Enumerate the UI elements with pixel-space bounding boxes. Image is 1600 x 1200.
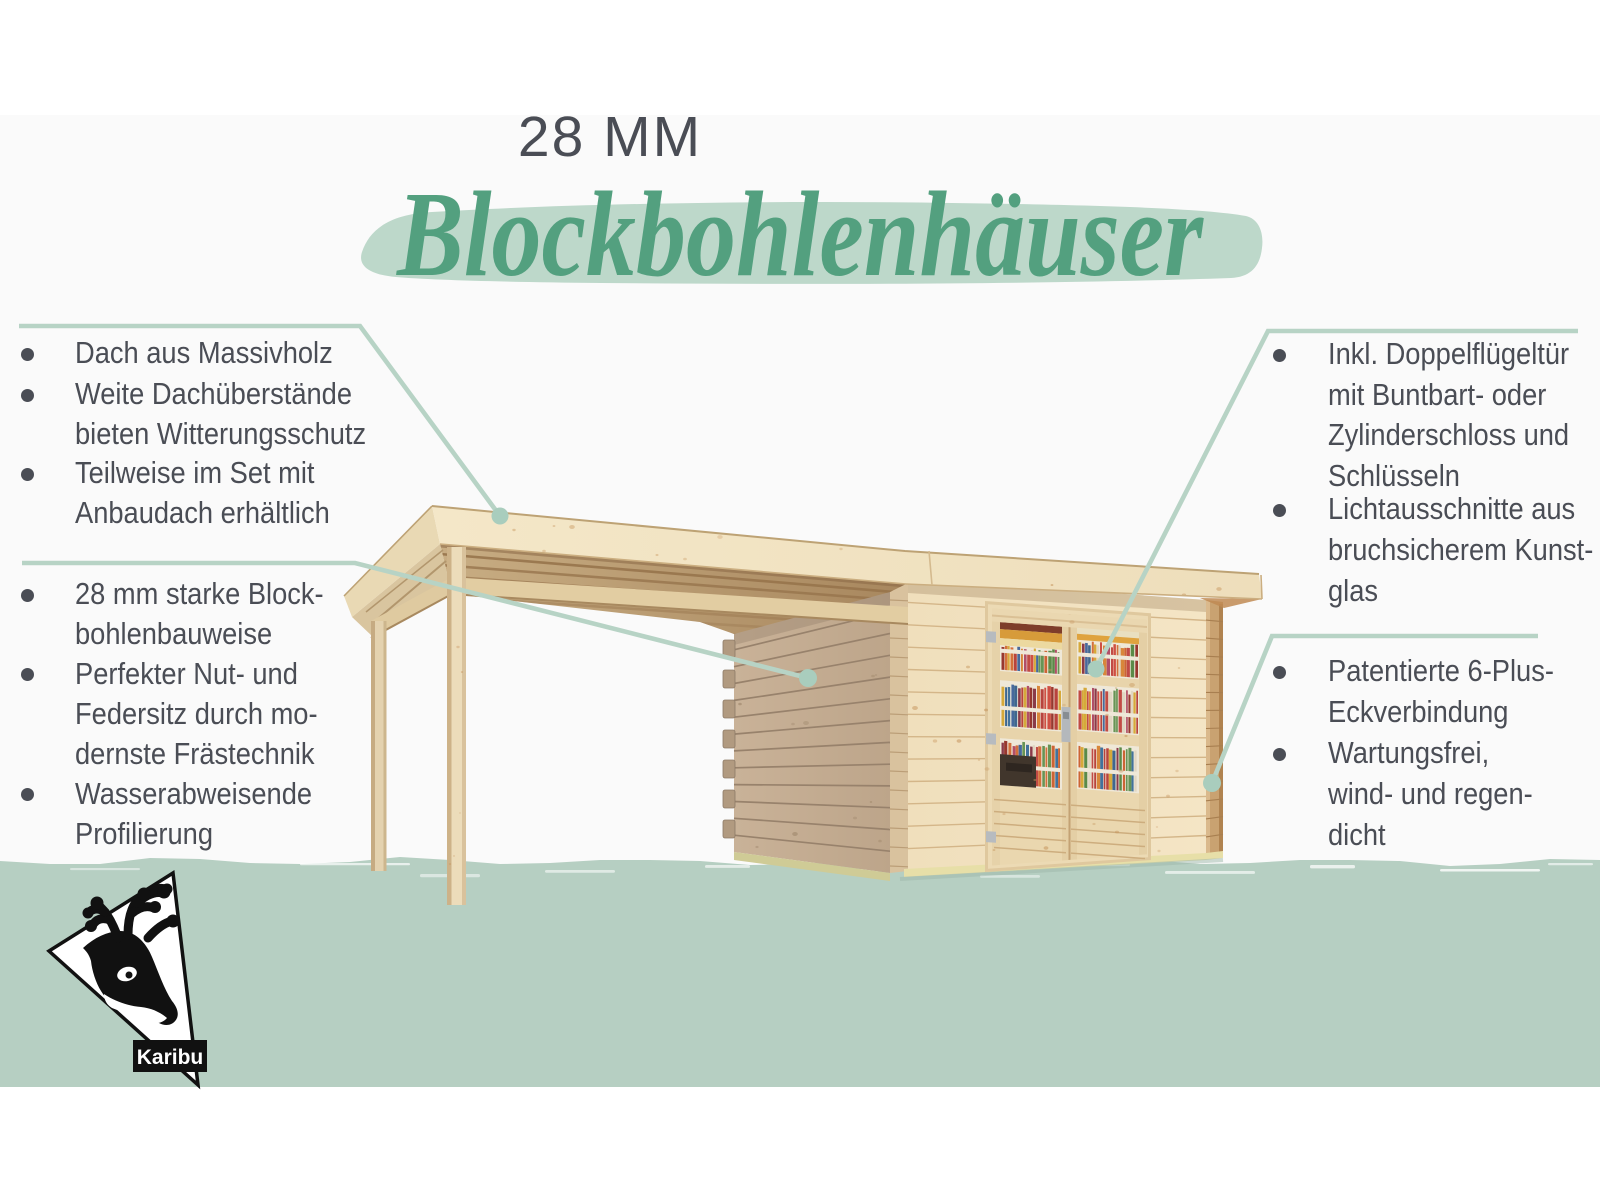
- svg-text:Karibu: Karibu: [137, 1046, 204, 1069]
